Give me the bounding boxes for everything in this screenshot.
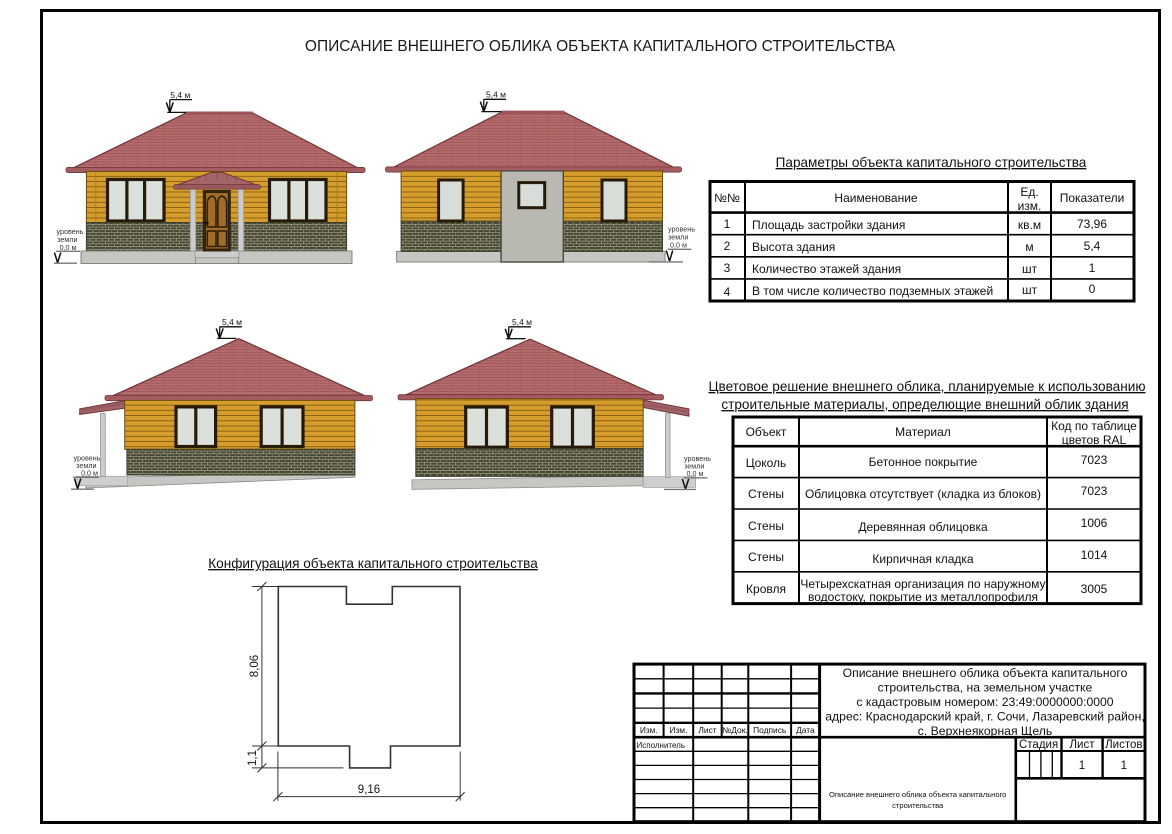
svg-text:7023: 7023 [1081,484,1108,498]
svg-text:Бетонное покрытие: Бетонное покрытие [869,455,978,469]
svg-text:шт: шт [1022,262,1038,276]
svg-text:ОПИСАНИЕ ВНЕШНЕГО ОБЛИКА ОБЪЕК: ОПИСАНИЕ ВНЕШНЕГО ОБЛИКА ОБЪЕКТА КАПИТАЛ… [305,38,896,55]
svg-text:73,96: 73,96 [1077,217,1107,231]
svg-text:2: 2 [724,239,731,253]
svg-text:В том числе количество подземн: В том числе количество подземных этажей [752,284,993,298]
svg-text:Описание внешнего облика объек: Описание внешнего облика объекта капитал… [843,666,1128,680]
svg-text:Лист: Лист [1070,739,1096,751]
svg-text:5,4 м: 5,4 м [222,317,242,327]
svg-text:адрес: Краснодарский край, г.: адрес: Краснодарский край, г. Сочи, Лаза… [825,710,1144,724]
svg-text:Наименование: Наименование [834,191,918,205]
svg-text:1: 1 [724,217,731,231]
svg-text:Описание внешнего облика объек: Описание внешнего облика объекта капитал… [829,790,1006,799]
svg-text:Цветовое решение внешнего обли: Цветовое решение внешнего облика, планир… [708,379,1145,394]
svg-text:Стены: Стены [748,519,784,533]
svg-text:9,16: 9,16 [358,784,380,796]
svg-text:Высота здания: Высота здания [752,240,835,254]
svg-text:3: 3 [724,261,731,275]
svg-text:Объект: Объект [746,425,787,439]
svg-text:строительства: строительства [892,801,944,810]
svg-text:Лист: Лист [698,725,716,735]
svg-text:Деревянная облицовка: Деревянная облицовка [858,520,988,534]
svg-text:5,4: 5,4 [1084,239,1101,253]
svg-text:кв.м: кв.м [1018,218,1041,232]
svg-text:Материал: Материал [895,425,951,439]
svg-text:с кадастровым номером: 23:49:0: с кадастровым номером: 23:49:0000000:000… [856,695,1113,709]
svg-text:№Док.: №Док. [722,725,747,735]
svg-text:7023: 7023 [1081,453,1108,467]
svg-text:5,4 м: 5,4 м [512,317,532,327]
svg-text:1014: 1014 [1081,548,1108,562]
svg-text:1006: 1006 [1081,516,1108,530]
svg-text:Изм.: Изм. [640,725,658,735]
svg-text:5,4 м: 5,4 м [486,90,506,100]
svg-text:Конфигурация объекта капитальн: Конфигурация объекта капитального строит… [208,556,538,571]
svg-text:Показатели: Показатели [1060,191,1125,205]
svg-text:водостоку, покрытие из металло: водостоку, покрытие из металлопрофиля [808,590,1038,604]
svg-text:0: 0 [1089,282,1096,296]
svg-text:Площадь застройки здания: Площадь застройки здания [752,218,905,232]
svg-text:1: 1 [1121,760,1127,772]
svg-text:Цоколь: Цоколь [746,456,787,470]
svg-text:Облицовка отсутствует (кладка: Облицовка отсутствует (кладка из блоков) [805,487,1041,501]
svg-text:5,4 м: 5,4 м [170,90,190,100]
svg-text:Листов: Листов [1105,739,1142,751]
svg-text:0,0 м: 0,0 м [81,469,98,478]
svg-text:изм.: изм. [1018,199,1042,213]
svg-text:Исполнитель: Исполнитель [637,741,686,750]
svg-text:строительства, на земельном уч: строительства, на земельном участке [878,681,1093,695]
svg-text:Кирпичная кладка: Кирпичная кладка [872,552,974,566]
svg-text:1: 1 [1089,261,1096,275]
svg-text:Ед.: Ед. [1020,185,1038,199]
svg-text:8,06: 8,06 [249,655,261,677]
svg-text:Четырехскатная организация по: Четырехскатная организация по наружному [800,577,1045,591]
svg-text:Стадия: Стадия [1019,739,1058,751]
svg-text:Параметры объекта капитального: Параметры объекта капитального строитель… [776,155,1087,170]
svg-text:Дата: Дата [796,725,815,735]
svg-text:Стены: Стены [748,487,784,501]
svg-text:м: м [1025,240,1033,254]
svg-text:4: 4 [724,285,731,299]
svg-text:строительные материалы, опреде: строительные материалы, определющие внеш… [721,397,1128,412]
svg-text:Подпись: Подпись [753,725,787,735]
svg-text:№№: №№ [714,191,740,205]
svg-text:шт: шт [1022,283,1038,297]
svg-text:0,0 м: 0,0 м [670,241,687,250]
svg-text:Изм.: Изм. [669,725,687,735]
svg-text:3005: 3005 [1081,582,1108,596]
svg-text:1,1: 1,1 [247,750,259,766]
svg-text:Количество этажей здания: Количество этажей здания [752,262,901,276]
svg-text:Кровля: Кровля [746,582,786,596]
svg-text:0,0 м: 0,0 м [687,469,704,478]
svg-text:с. Верхнеякорная Щель: с. Верхнеякорная Щель [918,724,1052,738]
svg-text:цветов RAL: цветов RAL [1062,433,1127,447]
svg-text:Стены: Стены [748,550,784,564]
svg-text:1: 1 [1079,760,1085,772]
svg-text:Код по таблице: Код по таблице [1051,419,1137,433]
